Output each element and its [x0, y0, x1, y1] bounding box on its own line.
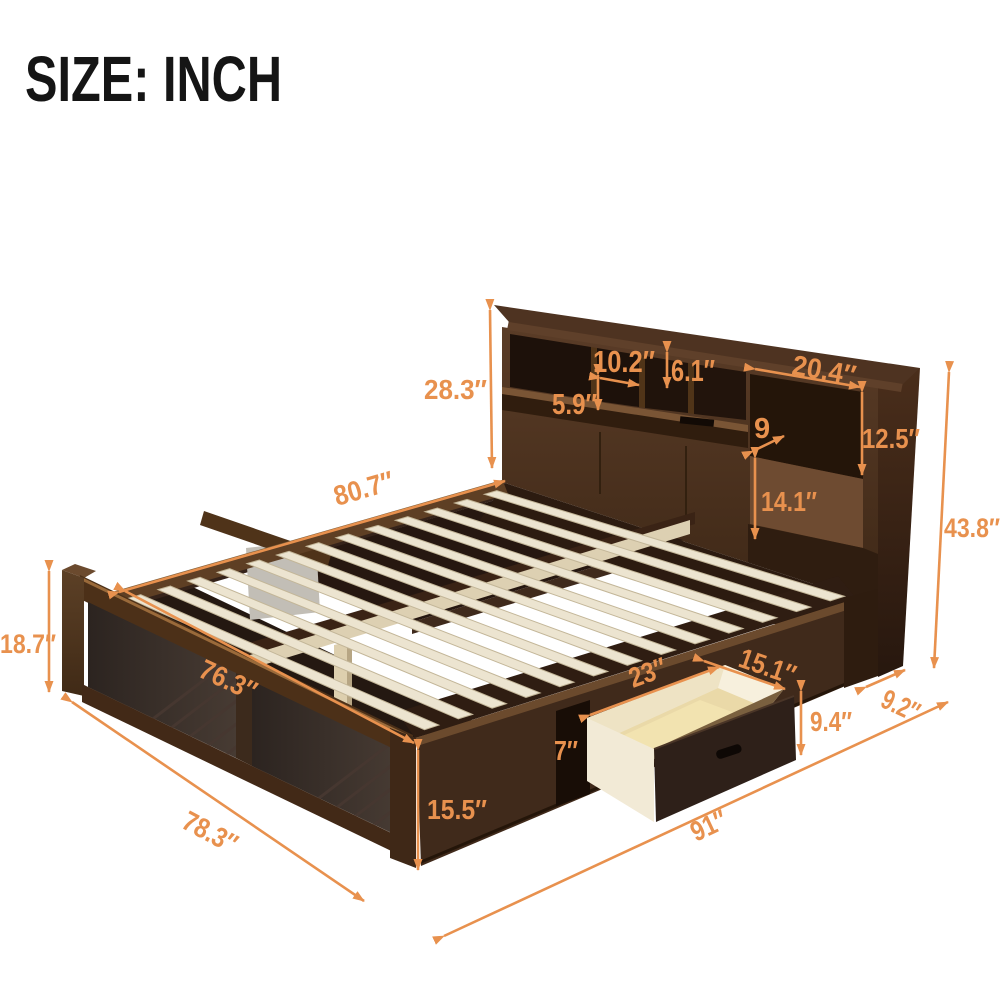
svg-text:10.2″: 10.2″: [593, 344, 655, 379]
svg-text:7″: 7″: [554, 735, 578, 766]
svg-text:6.1″: 6.1″: [671, 353, 715, 388]
svg-text:15.5″: 15.5″: [427, 794, 487, 825]
svg-text:9.4″: 9.4″: [810, 706, 852, 737]
svg-text:12.5″: 12.5″: [862, 423, 920, 454]
svg-text:9: 9: [754, 413, 770, 445]
svg-text:28.3″: 28.3″: [424, 374, 487, 405]
svg-text:18.7″: 18.7″: [0, 629, 56, 659]
svg-text:SIZE: INCH: SIZE: INCH: [25, 43, 282, 115]
svg-text:5.9″: 5.9″: [552, 389, 597, 421]
svg-text:43.8″: 43.8″: [944, 513, 1000, 543]
svg-text:14.1″: 14.1″: [761, 486, 817, 517]
